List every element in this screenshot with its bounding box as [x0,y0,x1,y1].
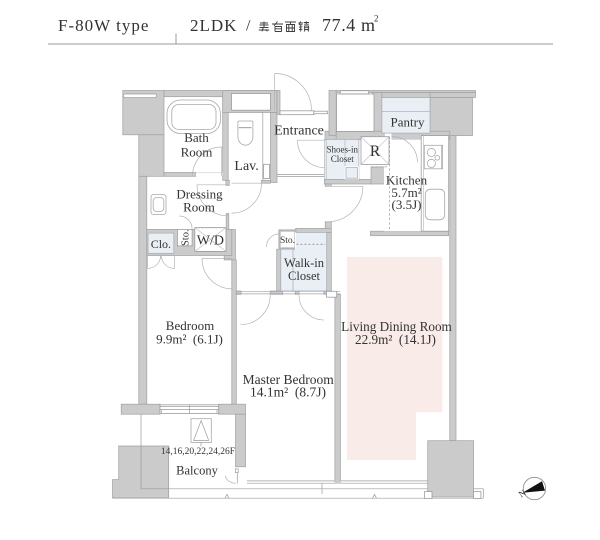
svg-text:/: / [246,18,251,35]
svg-text:(3.5J): (3.5J) [392,197,422,212]
svg-text:9.9m² (6.1J): 9.9m² (6.1J) [156,332,223,347]
svg-text:m: m [361,15,375,35]
svg-text:77.4: 77.4 [322,15,356,35]
svg-text:Room: Room [181,145,213,160]
svg-text:Balcony: Balcony [176,463,218,477]
svg-text:Lav.: Lav. [234,159,258,174]
svg-text:Shoes-in: Shoes-in [327,144,359,154]
svg-text:Sto.: Sto. [280,236,295,246]
svg-text:Entrance: Entrance [274,124,324,139]
svg-text:14.1m² (8.7J): 14.1m² (8.7J) [250,385,326,400]
svg-text:14,16,20,22,24,26F: 14,16,20,22,24,26F [161,447,235,457]
svg-text:Closet: Closet [331,154,355,164]
svg-text:2: 2 [374,14,379,24]
svg-text:Pantry: Pantry [391,115,425,130]
svg-text:2LDK: 2LDK [190,16,237,35]
svg-text:22.9m² (14.1J): 22.9m² (14.1J) [355,332,436,347]
svg-text:Bath: Bath [184,130,209,145]
svg-text:W/D: W/D [197,233,224,248]
svg-text:Clo.: Clo. [151,237,171,251]
svg-text:Sto.: Sto. [180,229,191,246]
svg-text:R: R [370,143,381,160]
svg-text:Closet: Closet [288,269,320,283]
svg-text:F-80W type: F-80W type [58,16,149,35]
svg-text:Walk-in: Walk-in [284,256,325,270]
svg-text:Room: Room [183,200,215,215]
